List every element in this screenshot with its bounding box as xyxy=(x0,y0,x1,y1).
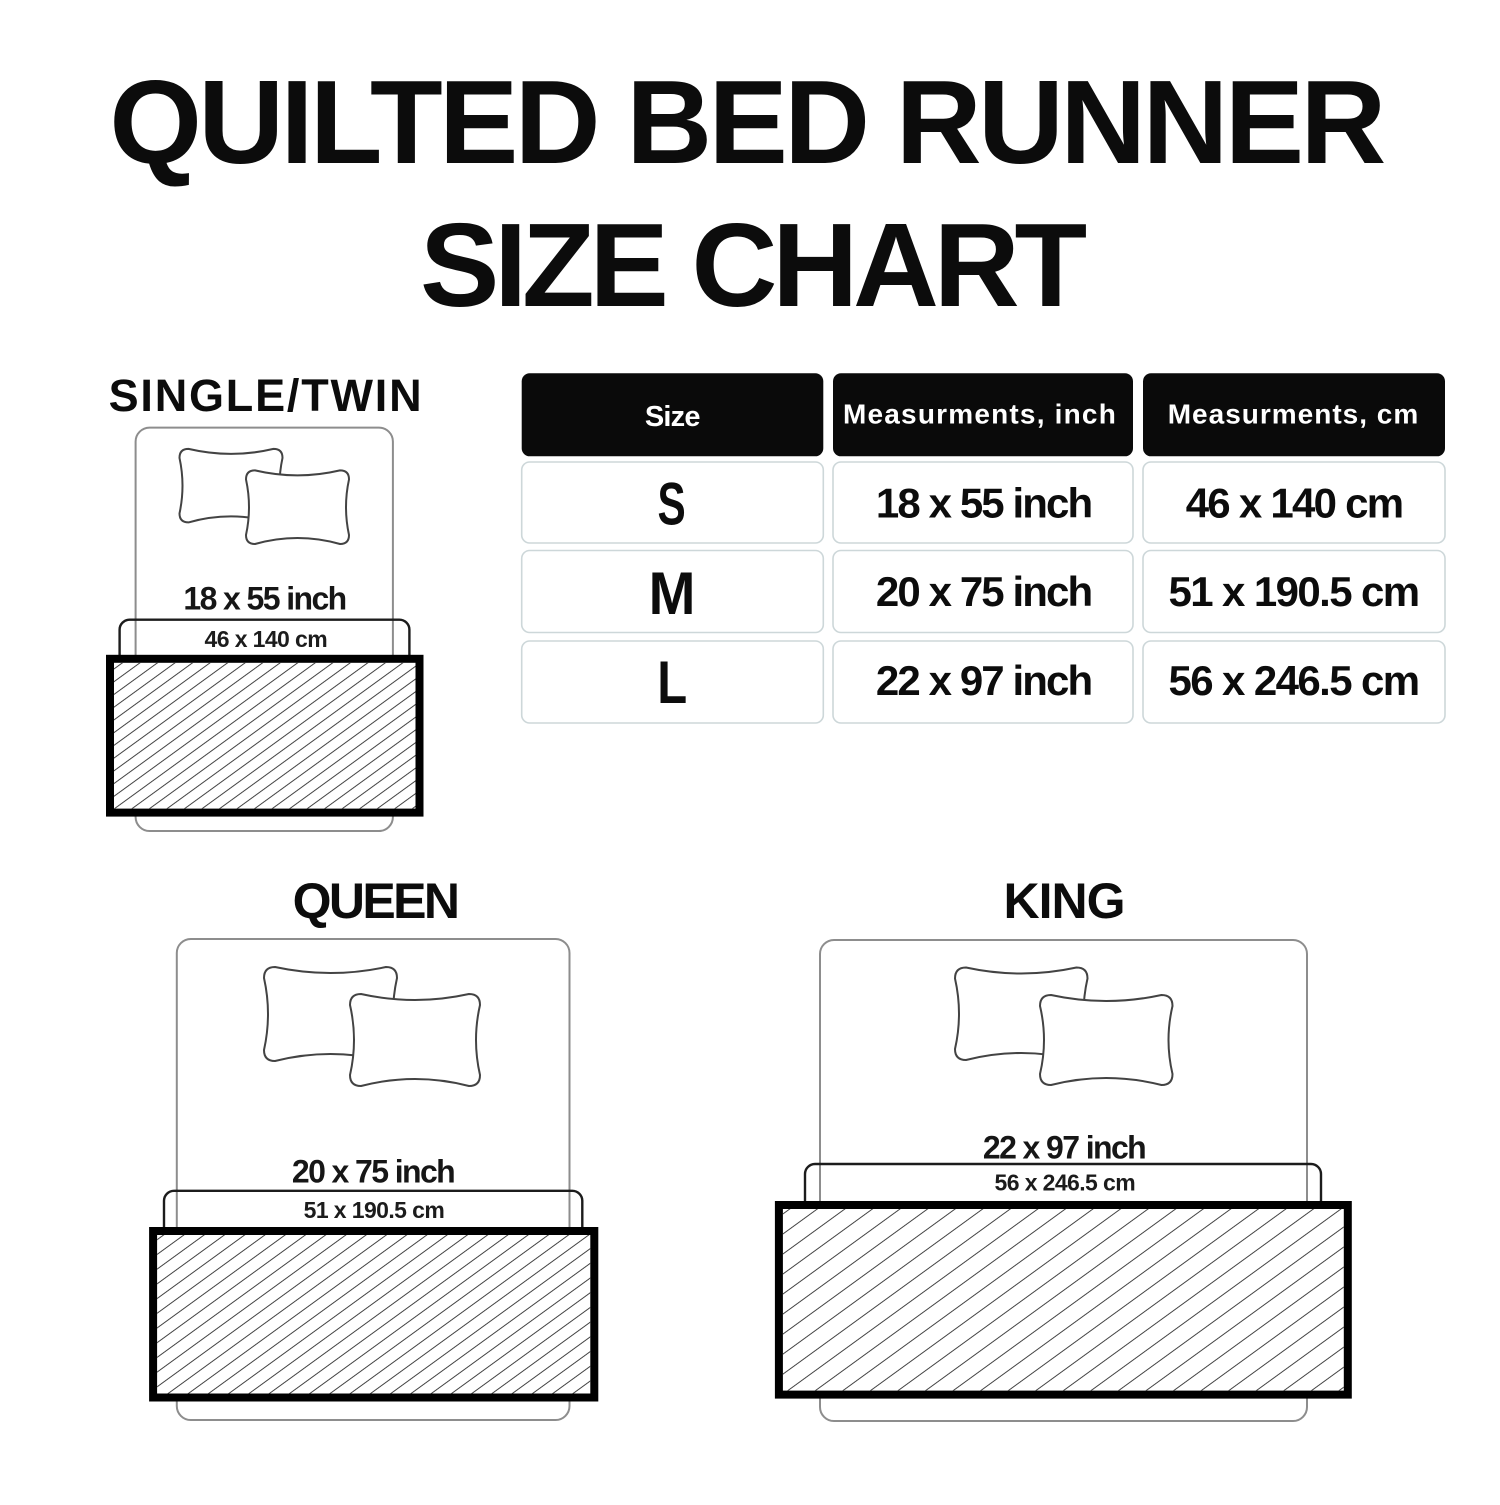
svg-text:20 x 75 inch: 20 x 75 inch xyxy=(292,1153,454,1189)
svg-text:56 x 246.5 cm: 56 x 246.5 cm xyxy=(995,1170,1136,1196)
svg-text:QUILTED BED RUNNER: QUILTED BED RUNNER xyxy=(109,56,1384,189)
svg-text:S: S xyxy=(658,470,686,537)
svg-text:56 x 246.5 cm: 56 x 246.5 cm xyxy=(1168,657,1418,704)
svg-text:51 x 190.5 cm: 51 x 190.5 cm xyxy=(1168,568,1418,615)
svg-text:22 x 97 inch: 22 x 97 inch xyxy=(876,657,1092,704)
svg-text:L: L xyxy=(657,649,687,716)
svg-text:18 x 55 inch: 18 x 55 inch xyxy=(183,581,345,617)
svg-text:51 x 190.5 cm: 51 x 190.5 cm xyxy=(304,1197,445,1223)
svg-text:Measurments, cm: Measurments, cm xyxy=(1168,398,1420,429)
svg-text:18 x 55 inch: 18 x 55 inch xyxy=(876,479,1092,526)
svg-text:46 x 140 cm: 46 x 140 cm xyxy=(1186,479,1403,526)
svg-text:Size: Size xyxy=(645,401,700,433)
svg-text:46 x 140 cm: 46 x 140 cm xyxy=(205,626,328,652)
svg-text:22 x 97 inch: 22 x 97 inch xyxy=(983,1130,1145,1166)
svg-text:KING: KING xyxy=(1004,873,1125,929)
svg-text:SIZE CHART: SIZE CHART xyxy=(420,199,1087,332)
svg-text:M: M xyxy=(649,560,696,627)
svg-text:20 x 75 inch: 20 x 75 inch xyxy=(876,568,1092,615)
svg-text:SINGLE/TWIN: SINGLE/TWIN xyxy=(109,370,424,421)
svg-text:Measurments, inch: Measurments, inch xyxy=(843,398,1117,429)
svg-text:QUEEN: QUEEN xyxy=(293,873,458,929)
